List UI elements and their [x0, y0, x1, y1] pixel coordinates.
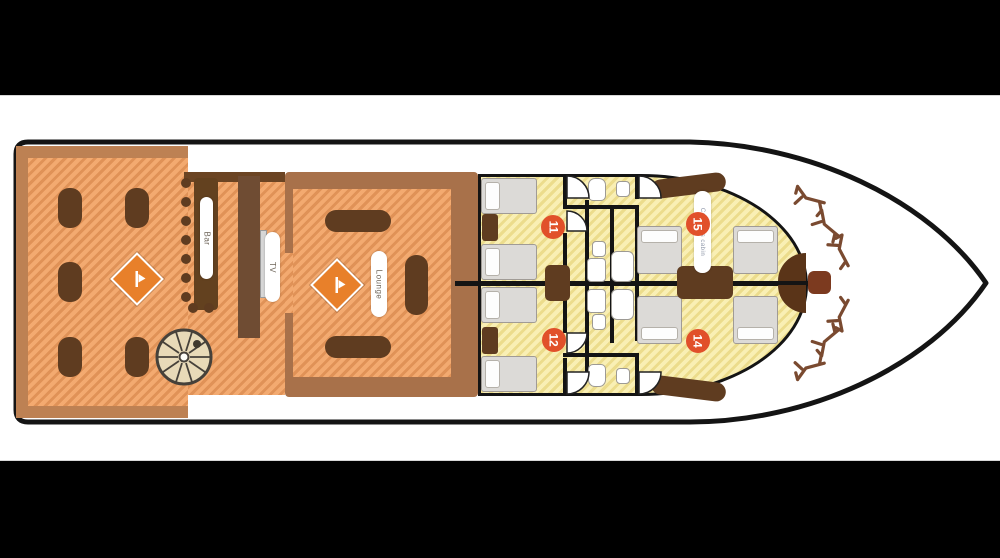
shower-icon: [587, 258, 606, 282]
bow-bench: [808, 271, 831, 294]
deck-seat: [58, 337, 82, 377]
deck-seat: [58, 262, 82, 302]
bed: [481, 287, 537, 323]
cabin-wall: [563, 358, 567, 394]
tv-label: TV: [265, 232, 280, 302]
sink-icon: [592, 241, 606, 257]
cabin-number: 12: [547, 333, 561, 346]
bed: [733, 226, 778, 274]
nightstand: [482, 327, 498, 354]
bathroom-wall: [585, 200, 589, 372]
bar-stool: [181, 235, 191, 245]
bar-stool: [181, 273, 191, 283]
deck-seat: [125, 337, 149, 377]
cabin-badge-14: 14: [686, 329, 710, 353]
toilet-icon: [588, 364, 606, 387]
sink-icon: [616, 368, 630, 384]
lounge-sofa: [325, 210, 391, 232]
aft-deck-floor: [28, 158, 188, 406]
bathroom-wall: [635, 357, 639, 394]
bathroom-wall: [635, 177, 639, 199]
sail-flag-icon: [127, 269, 147, 289]
shower-icon: [611, 289, 634, 320]
cabin-number: 15: [691, 217, 705, 230]
bar-stool: [181, 178, 191, 188]
cabin-wall: [563, 177, 567, 207]
bar-label: Bar: [200, 197, 213, 279]
lounge-sofa: [325, 336, 391, 358]
centerline-wall: [455, 281, 813, 286]
sail-flag-icon: [327, 275, 347, 295]
bed: [481, 244, 537, 280]
bar-stool: [204, 303, 214, 313]
cabin-badge-12: 12: [542, 328, 566, 352]
deck-seat: [58, 188, 82, 228]
lounge-label: Lounge: [371, 251, 387, 317]
tv-wall: [238, 176, 260, 338]
sink-icon: [616, 181, 630, 197]
shower-icon: [611, 251, 634, 282]
bed: [637, 226, 682, 274]
bathroom-wall: [563, 205, 639, 209]
cabin-badge-15: 15: [686, 212, 710, 236]
bar-stool: [181, 197, 191, 207]
lounge-door-opening: [285, 253, 293, 313]
deck-seat: [125, 188, 149, 228]
bed: [481, 178, 537, 214]
bathroom-wall: [563, 353, 639, 357]
bed: [637, 296, 682, 344]
deck-plan: Bar TV Lounge Captain's cabin 11 12 14 1…: [0, 0, 1000, 558]
bar-stool: [188, 303, 198, 313]
nightstand: [545, 265, 570, 301]
bar-stool: [181, 216, 191, 226]
cabin-number: 14: [691, 334, 705, 347]
cabin-number: 11: [546, 221, 560, 234]
bed: [733, 296, 778, 344]
lounge-sofa: [405, 255, 428, 315]
shower-icon: [587, 289, 606, 313]
sink-icon: [592, 314, 606, 330]
lounge-label-text: Lounge: [375, 269, 384, 299]
toilet-icon: [588, 178, 606, 201]
nightstand: [482, 214, 498, 241]
aft-deck: [16, 146, 188, 418]
bar-stool: [181, 292, 191, 302]
bar-label-text: Bar: [202, 231, 211, 245]
bar-stool: [181, 254, 191, 264]
tv-label-text: TV: [268, 261, 277, 272]
cabin-badge-11: 11: [541, 215, 565, 239]
bed: [481, 356, 537, 392]
